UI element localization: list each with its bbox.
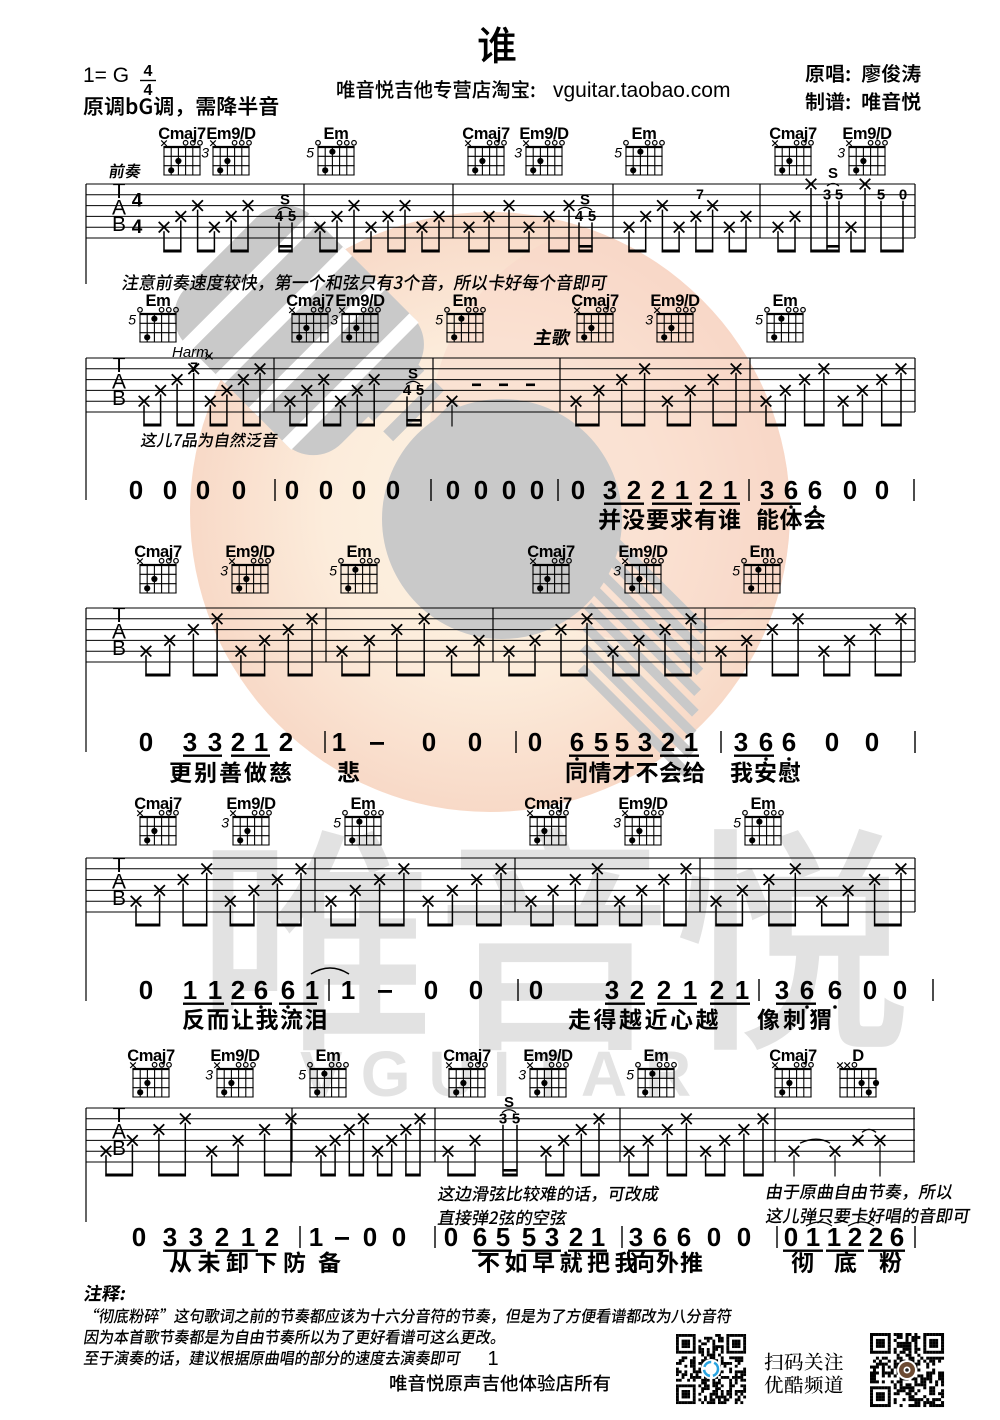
- svg-text:1: 1: [305, 975, 319, 1005]
- svg-text:3: 3: [613, 815, 621, 831]
- svg-text:6: 6: [828, 975, 842, 1005]
- svg-text:0: 0: [196, 475, 210, 505]
- svg-text:Em: Em: [751, 795, 776, 813]
- svg-text:B: B: [112, 1137, 126, 1160]
- svg-text:6: 6: [800, 975, 814, 1005]
- svg-text:0: 0: [422, 727, 436, 757]
- svg-text:S: S: [580, 191, 590, 208]
- svg-text:1: 1: [183, 975, 197, 1005]
- svg-text:B: B: [112, 637, 126, 660]
- svg-text:vguitar.taobao.com: vguitar.taobao.com: [553, 79, 730, 102]
- svg-text:0: 0: [899, 186, 907, 203]
- svg-text:0: 0: [163, 475, 177, 505]
- svg-text:3: 3: [638, 727, 652, 757]
- svg-text:B: B: [112, 213, 126, 236]
- svg-text:4: 4: [275, 208, 284, 225]
- svg-text:5: 5: [128, 312, 136, 328]
- svg-text:Em: Em: [324, 125, 349, 143]
- svg-text:Em: Em: [453, 292, 478, 310]
- svg-text:2: 2: [265, 1222, 279, 1252]
- svg-text:4: 4: [132, 191, 143, 212]
- svg-text:5: 5: [615, 727, 629, 757]
- svg-text:2: 2: [651, 475, 665, 505]
- svg-text:0: 0: [469, 975, 483, 1005]
- svg-text:0: 0: [363, 1222, 377, 1252]
- svg-text:Em: Em: [644, 1047, 669, 1065]
- svg-text:0: 0: [392, 1222, 406, 1252]
- svg-text:0: 0: [893, 975, 907, 1005]
- svg-text:6: 6: [784, 475, 798, 505]
- svg-text:0: 0: [571, 475, 585, 505]
- svg-text:B: B: [112, 387, 126, 410]
- svg-text:3: 3: [205, 1067, 213, 1083]
- svg-text:1: 1: [341, 975, 355, 1005]
- svg-text:Em: Em: [146, 292, 171, 310]
- svg-text:0: 0: [468, 727, 482, 757]
- svg-text:5: 5: [588, 208, 596, 225]
- svg-text:0: 0: [444, 1222, 458, 1252]
- svg-text:3: 3: [163, 1222, 177, 1252]
- svg-text:0: 0: [707, 1222, 721, 1252]
- svg-text:1: 1: [332, 727, 346, 757]
- svg-text:6: 6: [677, 1222, 691, 1252]
- svg-text:S: S: [408, 365, 418, 382]
- svg-text:7: 7: [696, 186, 704, 202]
- svg-text:6: 6: [808, 475, 822, 505]
- svg-text:B: B: [112, 887, 126, 910]
- svg-text:1: 1: [254, 727, 268, 757]
- svg-text:S: S: [280, 191, 290, 208]
- svg-text:1= G: 1= G: [83, 64, 129, 87]
- svg-text:S: S: [504, 1094, 514, 1111]
- svg-text:3: 3: [514, 145, 522, 161]
- svg-text:5: 5: [594, 727, 608, 757]
- svg-text:0: 0: [737, 1222, 751, 1252]
- svg-text:6: 6: [890, 1222, 904, 1252]
- svg-text:4: 4: [403, 382, 412, 399]
- svg-text:5: 5: [835, 186, 843, 203]
- svg-text:3: 3: [330, 312, 338, 328]
- svg-text:3: 3: [837, 145, 845, 161]
- svg-text:1: 1: [684, 727, 698, 757]
- svg-text:0: 0: [784, 1222, 798, 1252]
- svg-text:0: 0: [132, 1222, 146, 1252]
- svg-text:5: 5: [288, 208, 296, 225]
- svg-text:5: 5: [614, 145, 622, 161]
- svg-text:Em: Em: [750, 543, 775, 561]
- svg-text:4: 4: [144, 82, 153, 99]
- svg-text:0: 0: [139, 975, 153, 1005]
- svg-text:1: 1: [827, 1222, 841, 1252]
- svg-text:4: 4: [144, 63, 153, 80]
- svg-text:3: 3: [603, 475, 617, 505]
- svg-text:3: 3: [499, 1110, 507, 1127]
- svg-text:6: 6: [473, 1222, 487, 1252]
- svg-text:1: 1: [487, 1348, 498, 1370]
- svg-text:1: 1: [208, 975, 222, 1005]
- svg-text:5: 5: [333, 815, 341, 831]
- svg-text:3: 3: [518, 1067, 526, 1083]
- svg-text:5: 5: [522, 1222, 536, 1252]
- svg-text:5: 5: [298, 1067, 306, 1083]
- svg-text:2: 2: [848, 1222, 862, 1252]
- svg-text:5: 5: [732, 563, 740, 579]
- svg-text:0: 0: [863, 975, 877, 1005]
- svg-text:0: 0: [474, 475, 488, 505]
- svg-text:3: 3: [629, 1222, 643, 1252]
- svg-text:5: 5: [416, 382, 424, 399]
- svg-text:5: 5: [496, 1222, 510, 1252]
- svg-text:4: 4: [132, 217, 143, 238]
- svg-text:1: 1: [806, 1222, 820, 1252]
- svg-text:0: 0: [875, 475, 889, 505]
- svg-text:0: 0: [386, 475, 400, 505]
- svg-text:0: 0: [446, 475, 460, 505]
- svg-text:3: 3: [645, 312, 653, 328]
- svg-text:2: 2: [215, 1222, 229, 1252]
- svg-text:5: 5: [306, 145, 314, 161]
- svg-text:5: 5: [755, 312, 763, 328]
- svg-text:3: 3: [221, 815, 229, 831]
- svg-text:1: 1: [591, 1222, 605, 1252]
- svg-text:Em: Em: [351, 795, 376, 813]
- svg-text:3: 3: [734, 727, 748, 757]
- svg-text:1: 1: [309, 1222, 323, 1252]
- svg-text:6: 6: [570, 727, 584, 757]
- svg-text:6: 6: [653, 1222, 667, 1252]
- svg-text:Em: Em: [773, 292, 798, 310]
- svg-text:Em: Em: [316, 1047, 341, 1065]
- svg-text:2: 2: [630, 975, 644, 1005]
- svg-text:0: 0: [843, 475, 857, 505]
- svg-text:3: 3: [823, 186, 831, 203]
- svg-text:1: 1: [723, 475, 737, 505]
- svg-text:3: 3: [545, 1222, 559, 1252]
- svg-text:5: 5: [512, 1110, 520, 1127]
- svg-text:0: 0: [232, 475, 246, 505]
- svg-text:3: 3: [201, 145, 209, 161]
- svg-text:2: 2: [699, 475, 713, 505]
- svg-text:4: 4: [575, 208, 584, 225]
- svg-text:3: 3: [775, 975, 789, 1005]
- svg-text:0: 0: [352, 475, 366, 505]
- svg-text:3: 3: [613, 563, 621, 579]
- svg-text:0: 0: [319, 475, 333, 505]
- svg-text:6: 6: [281, 975, 295, 1005]
- svg-text:2: 2: [661, 727, 675, 757]
- svg-text:2: 2: [279, 727, 293, 757]
- svg-text:0: 0: [139, 727, 153, 757]
- svg-text:5: 5: [626, 1067, 634, 1083]
- svg-text:6: 6: [782, 727, 796, 757]
- svg-text:2: 2: [657, 975, 671, 1005]
- svg-text:S: S: [828, 165, 838, 182]
- svg-text:0: 0: [502, 475, 516, 505]
- svg-text:3: 3: [605, 975, 619, 1005]
- svg-text:3: 3: [760, 475, 774, 505]
- svg-text:0: 0: [529, 975, 543, 1005]
- svg-text:0: 0: [528, 727, 542, 757]
- svg-text:5: 5: [733, 815, 741, 831]
- svg-text:5: 5: [877, 186, 885, 203]
- svg-text:Em: Em: [632, 125, 657, 143]
- svg-text:0: 0: [129, 475, 143, 505]
- svg-text:6: 6: [759, 727, 773, 757]
- svg-text:1: 1: [241, 1222, 255, 1252]
- svg-text:3: 3: [189, 1222, 203, 1252]
- svg-text:1: 1: [675, 475, 689, 505]
- svg-text:0: 0: [285, 475, 299, 505]
- svg-text:3: 3: [220, 563, 228, 579]
- svg-text:2: 2: [569, 1222, 583, 1252]
- svg-text:2: 2: [231, 975, 245, 1005]
- svg-text:0: 0: [530, 475, 544, 505]
- svg-text:2: 2: [627, 475, 641, 505]
- svg-text:0: 0: [424, 975, 438, 1005]
- svg-text:5: 5: [435, 312, 443, 328]
- svg-text:3: 3: [183, 727, 197, 757]
- svg-text:0: 0: [825, 727, 839, 757]
- svg-text:0: 0: [865, 727, 879, 757]
- svg-text:2: 2: [869, 1222, 883, 1252]
- svg-text:6: 6: [254, 975, 268, 1005]
- svg-text:3: 3: [208, 727, 222, 757]
- svg-text:2: 2: [231, 727, 245, 757]
- svg-text:1: 1: [735, 975, 749, 1005]
- svg-text:Em: Em: [347, 543, 372, 561]
- svg-text:2: 2: [710, 975, 724, 1005]
- svg-text:5: 5: [329, 563, 337, 579]
- svg-text:1: 1: [683, 975, 697, 1005]
